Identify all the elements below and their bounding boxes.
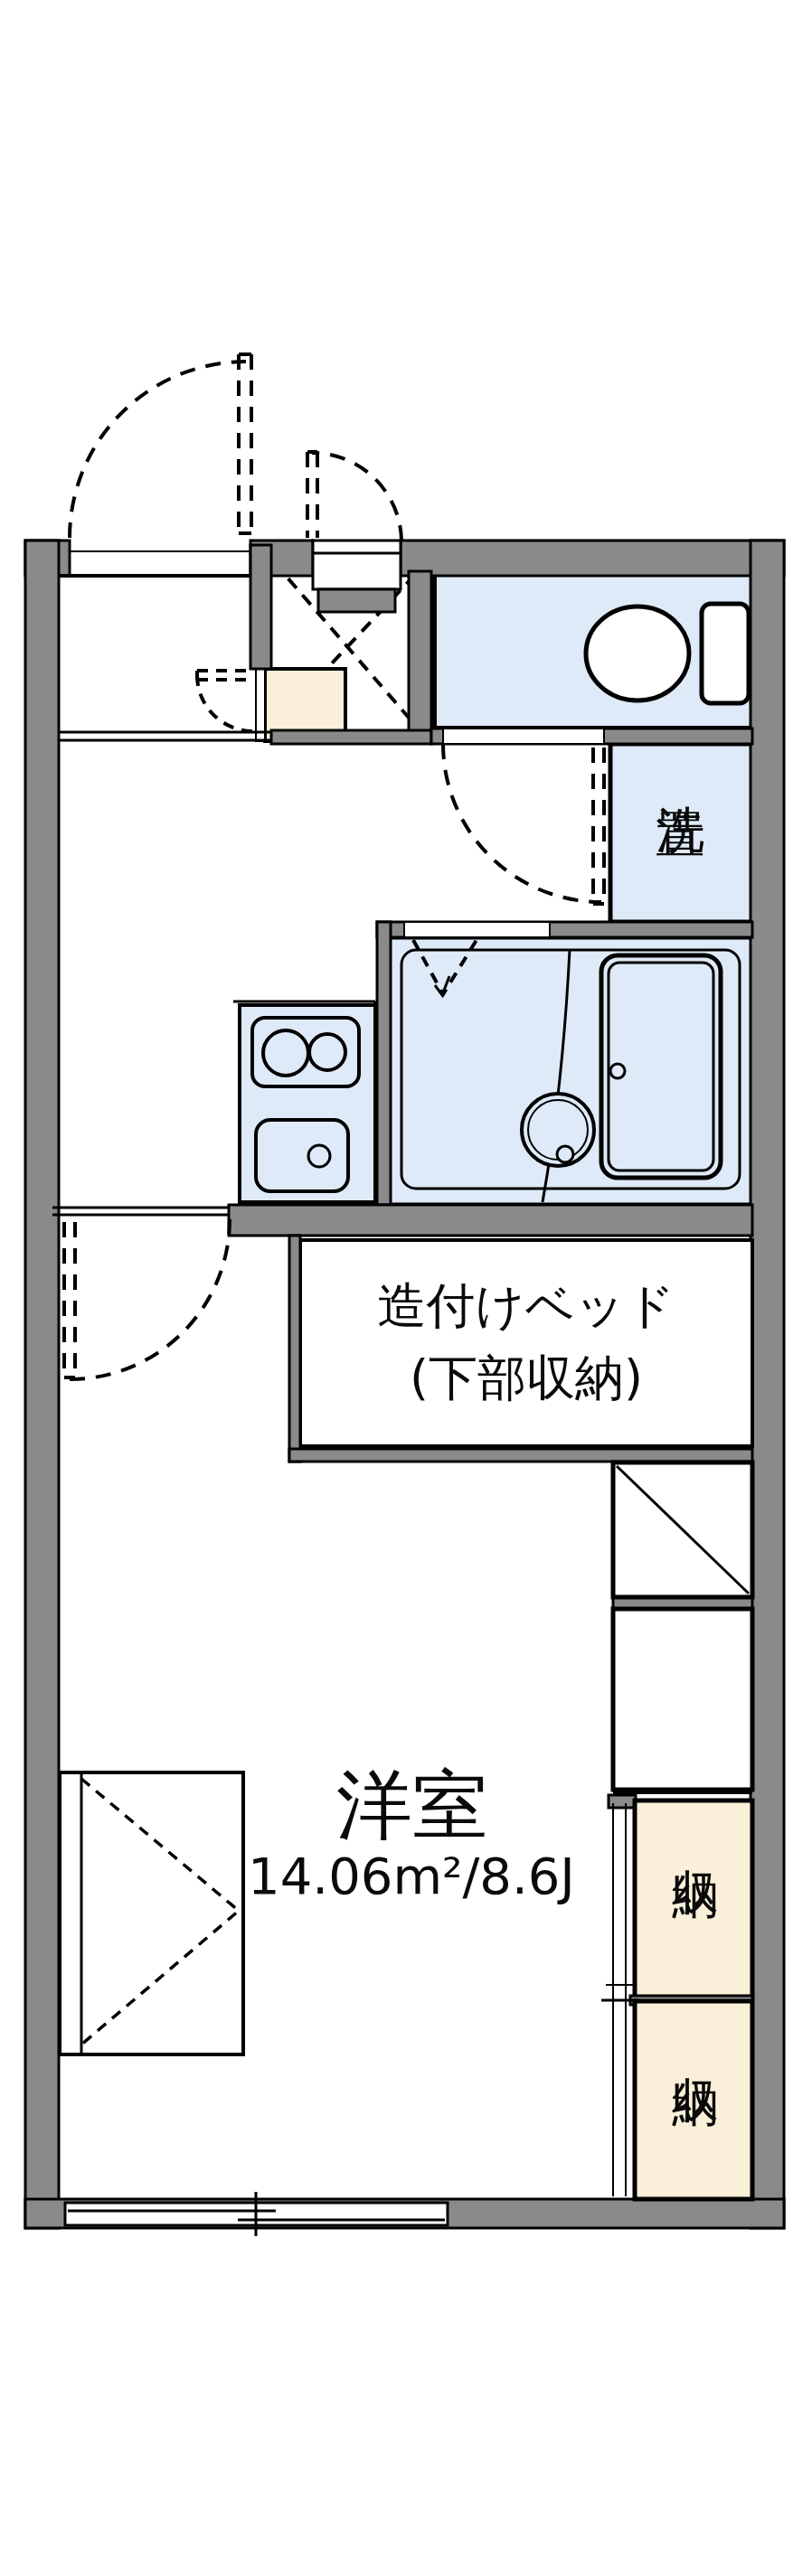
kitchen-counter	[233, 1001, 381, 1204]
closet-diagonal-box	[613, 1462, 752, 1597]
left-window-box	[60, 1772, 243, 2054]
right-wall	[751, 541, 784, 2228]
entrance-closet-door-swing	[197, 671, 253, 731]
utility-box	[613, 1609, 752, 1790]
toilet-icon	[586, 604, 749, 703]
left-wall	[25, 541, 59, 2228]
room-door-swing	[64, 1219, 230, 1379]
wash-basin-icon	[522, 1094, 594, 1166]
laundry-label: 洗置	[654, 766, 706, 777]
room-area-label: 14.06m²/8.6J	[222, 1849, 601, 1904]
storage-bottom-label: 収納	[670, 2039, 721, 2050]
bed-label-line2: (下部収納)	[300, 1352, 752, 1405]
toilet-door-swing	[443, 744, 604, 904]
bathtub-icon	[601, 955, 721, 1178]
floorplan: 洗置 造付けベッド (下部収納) 洋室 14.06m²/8.6J 収納 収納	[0, 0, 812, 2576]
storage-closet-top	[635, 1800, 752, 1998]
bed-label-line1: 造付けベッド	[300, 1280, 752, 1332]
sink-icon	[256, 1120, 348, 1191]
storage-closet-bottom	[635, 2001, 752, 2199]
room-name-label: 洋室	[231, 1764, 593, 1847]
shoe-door-frame	[256, 669, 265, 741]
storage-top-label: 収納	[670, 1831, 721, 1842]
entry-door-swing-arc-right	[307, 452, 401, 541]
entry-door	[313, 541, 401, 589]
built-in-bed-area	[289, 1236, 752, 1462]
entry-door-swing-arc-left	[70, 354, 251, 538]
